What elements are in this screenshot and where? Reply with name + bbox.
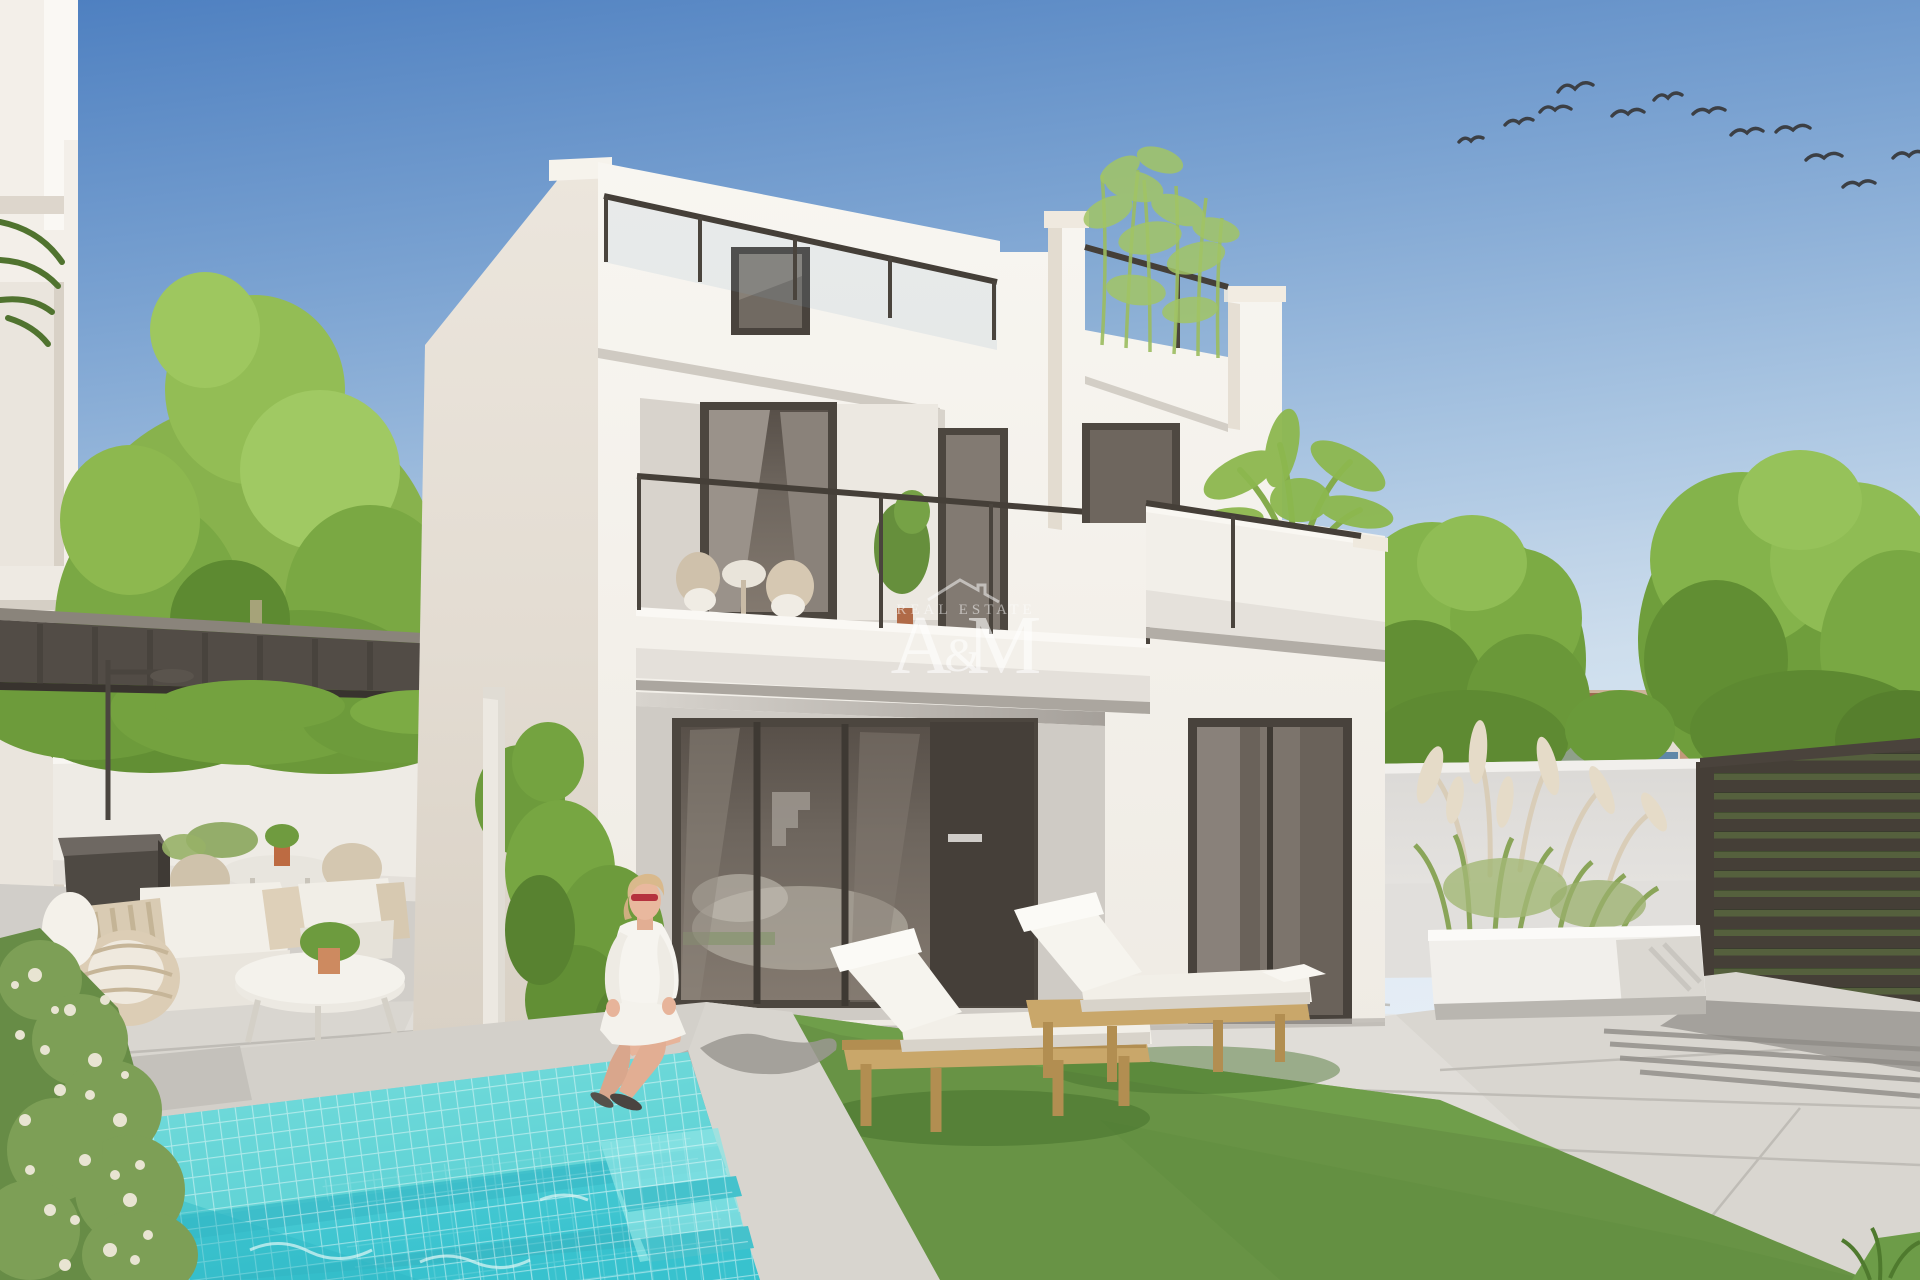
svg-text:A: A [891, 599, 952, 692]
svg-text:M: M [967, 599, 1042, 692]
